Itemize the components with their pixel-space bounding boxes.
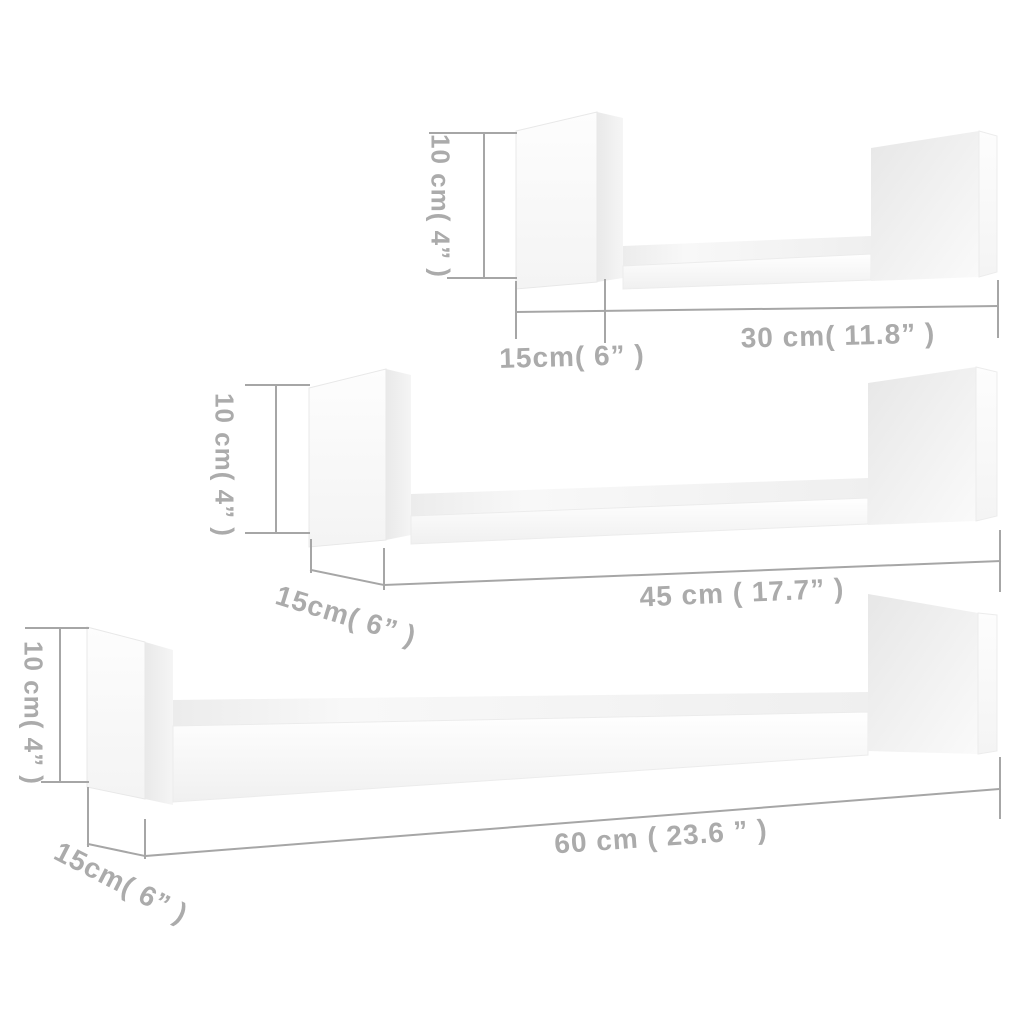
shelf-60cm — [87, 594, 997, 805]
shelf-60cm-right-panel-front — [868, 594, 978, 754]
shelf-30cm-right-panel-side — [979, 131, 997, 277]
shelf-45cm-left-panel-front — [309, 369, 386, 547]
shelf-60cm-right-panel-side — [978, 613, 997, 754]
shelf-60cm-left-panel-front — [87, 627, 145, 799]
shelf-45cm-left-panel-side — [386, 369, 411, 540]
shelf-30cm-left-panel-front — [516, 112, 597, 289]
shelf-30cm-right-panel-front — [871, 131, 979, 281]
height-label-shelf-60cm: 10 cm( 4” ) — [18, 641, 49, 785]
shelf-30cm-left-panel-side — [597, 112, 623, 282]
shelf-60cm-left-panel-side — [145, 642, 173, 805]
shelf-45cm — [309, 367, 997, 547]
product-dimension-diagram: 10 cm( 4” ) 15cm( 6” ) 30 cm( 11.8” ) 10… — [0, 0, 1024, 1024]
width-label-shelf-30cm: 30 cm( 11.8” ) — [740, 317, 935, 354]
shelf-45cm-right-panel-side — [976, 367, 997, 521]
shelf-60cm-board-front — [173, 712, 868, 802]
height-label-shelf-45cm: 10 cm( 4” ) — [209, 393, 240, 537]
shelf-45cm-right-panel-front — [868, 367, 976, 525]
depth-label-shelf-30cm: 15cm( 6” ) — [499, 339, 645, 375]
height-label-shelf-30cm: 10 cm( 4” ) — [425, 134, 456, 278]
shelf-30cm — [516, 112, 997, 289]
shelves-and-dimension-lines — [0, 0, 1024, 1024]
